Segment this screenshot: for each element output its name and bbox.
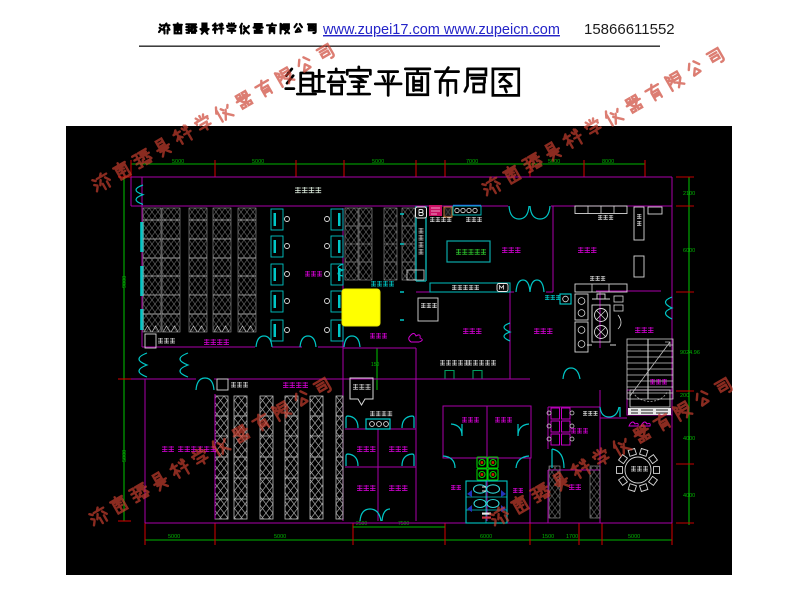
svg-text:5000: 5000 [252, 159, 264, 165]
svg-text:150: 150 [371, 362, 380, 368]
svg-text:4000: 4000 [683, 493, 695, 499]
svg-text:9000: 9000 [122, 276, 128, 288]
svg-text:200: 200 [680, 393, 689, 399]
svg-text:5000: 5000 [274, 534, 286, 540]
svg-text:www.zupei17.com www.zupeicn.co: www.zupei17.com www.zupeicn.com [322, 22, 560, 38]
svg-text:8000: 8000 [602, 159, 614, 165]
svg-text:2500: 2500 [356, 521, 367, 527]
svg-text:5000: 5000 [372, 159, 384, 165]
svg-text:5000: 5000 [168, 534, 180, 540]
svg-text:5000: 5000 [122, 450, 128, 462]
svg-text:9024.96: 9024.96 [680, 350, 700, 356]
svg-text:5000: 5000 [628, 534, 640, 540]
svg-text:4000: 4000 [683, 436, 695, 442]
svg-text:7000: 7000 [466, 159, 478, 165]
svg-text:7500: 7500 [398, 521, 409, 527]
svg-text:1700: 1700 [566, 534, 578, 540]
svg-text:5000: 5000 [172, 159, 184, 165]
svg-text:6000: 6000 [683, 248, 695, 254]
svg-text:15866611552: 15866611552 [584, 21, 675, 38]
svg-text:1500: 1500 [542, 534, 554, 540]
svg-text:6000: 6000 [480, 534, 492, 540]
svg-text:2100: 2100 [683, 191, 695, 197]
